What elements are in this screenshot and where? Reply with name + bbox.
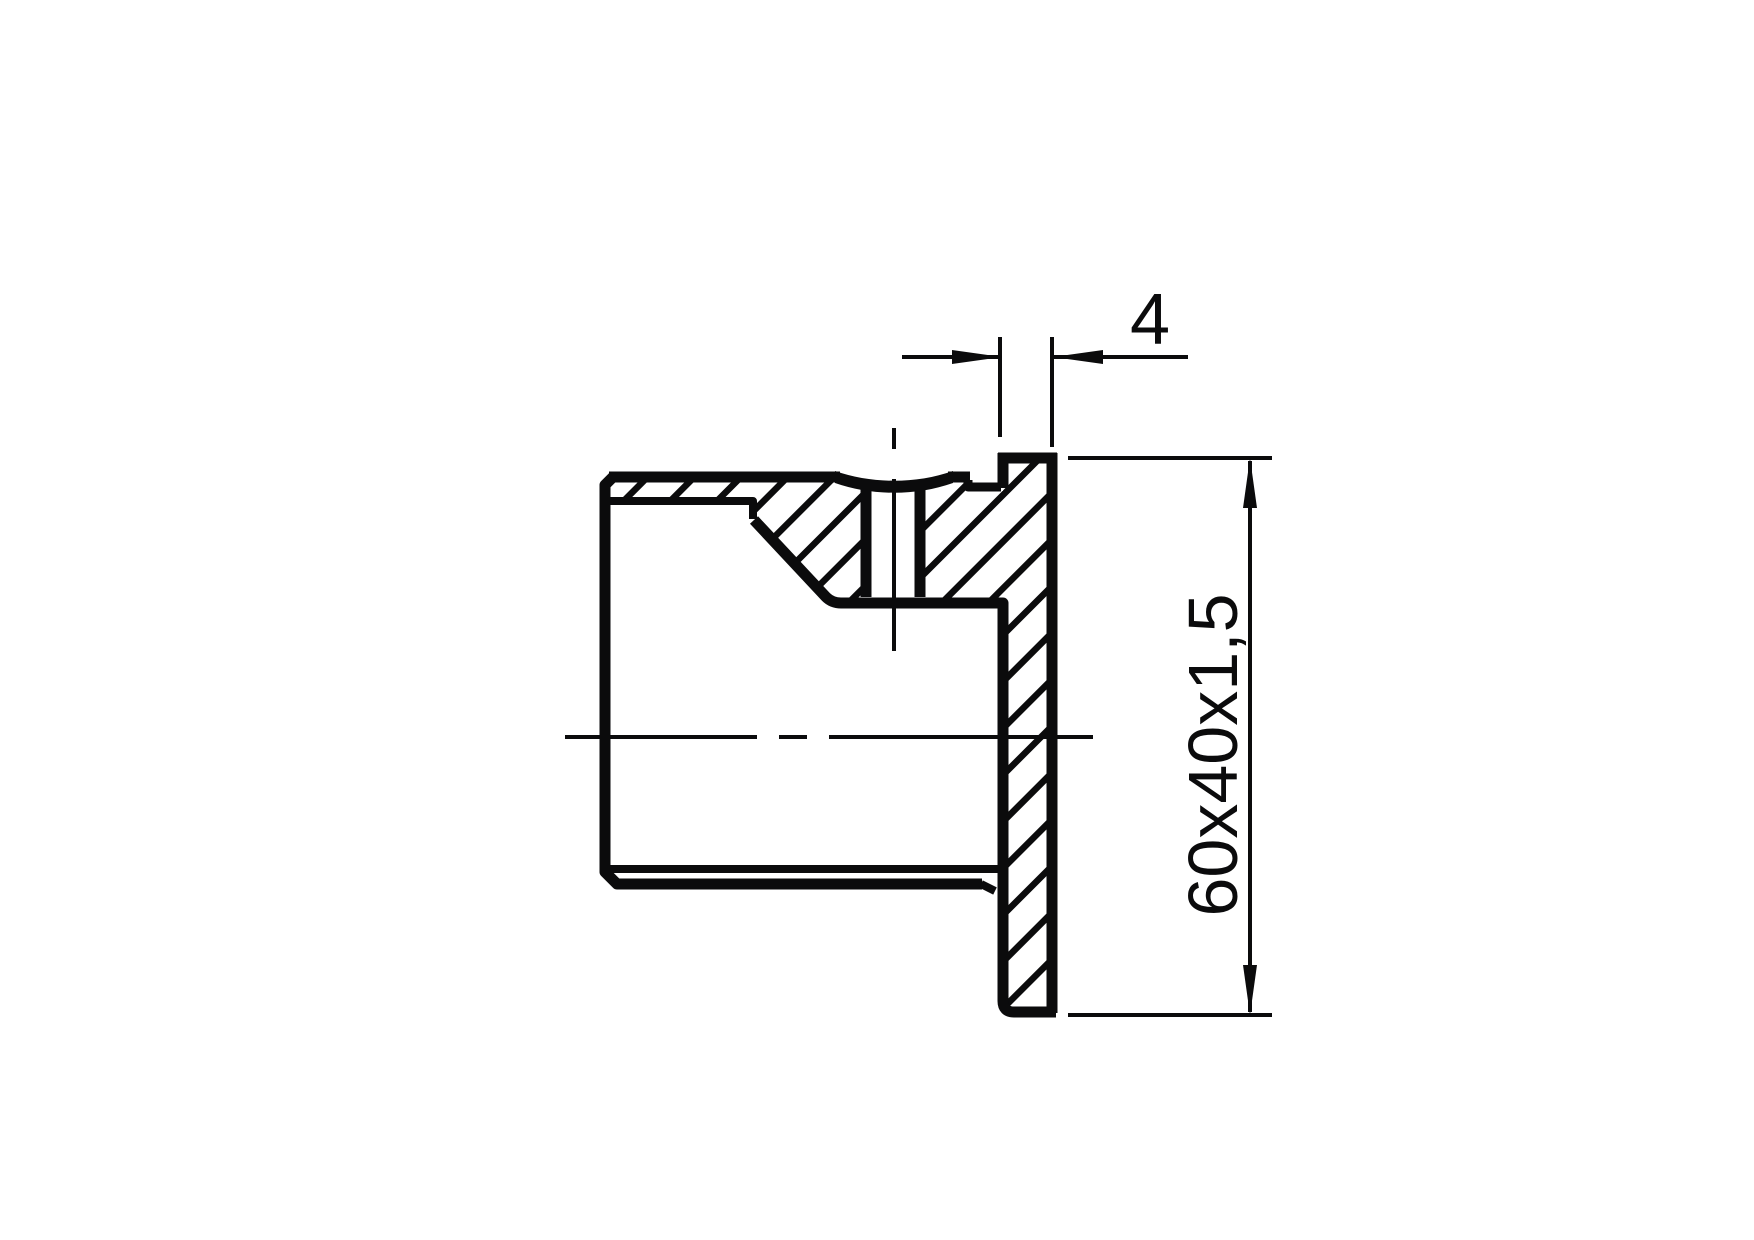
dim60-label: 60x40x1,5	[1174, 593, 1252, 916]
tube-seat-notch	[968, 480, 1001, 487]
technical-drawing: 4 60x40x1,5	[0, 0, 1754, 1240]
dim4-label: 4	[1130, 280, 1170, 360]
hatch-boss-right-of-hole	[924, 482, 1003, 598]
hatch-top-wall	[611, 482, 757, 498]
top-wall-inner-line	[607, 501, 753, 519]
part-section-view	[605, 453, 1057, 1013]
body-bottom-step	[981, 884, 995, 891]
dim60-arrowhead-bottom	[1243, 965, 1257, 1015]
dim4-arrowhead-left	[952, 350, 1002, 364]
dim4-arrowhead-right	[1053, 350, 1103, 364]
drawing-page: 4 60x40x1,5	[0, 0, 1754, 1240]
dimension-profile-size: 60x40x1,5	[1068, 458, 1272, 1015]
dim60-arrowhead-top	[1243, 458, 1257, 508]
dimension-flange-thickness: 4	[902, 280, 1188, 447]
